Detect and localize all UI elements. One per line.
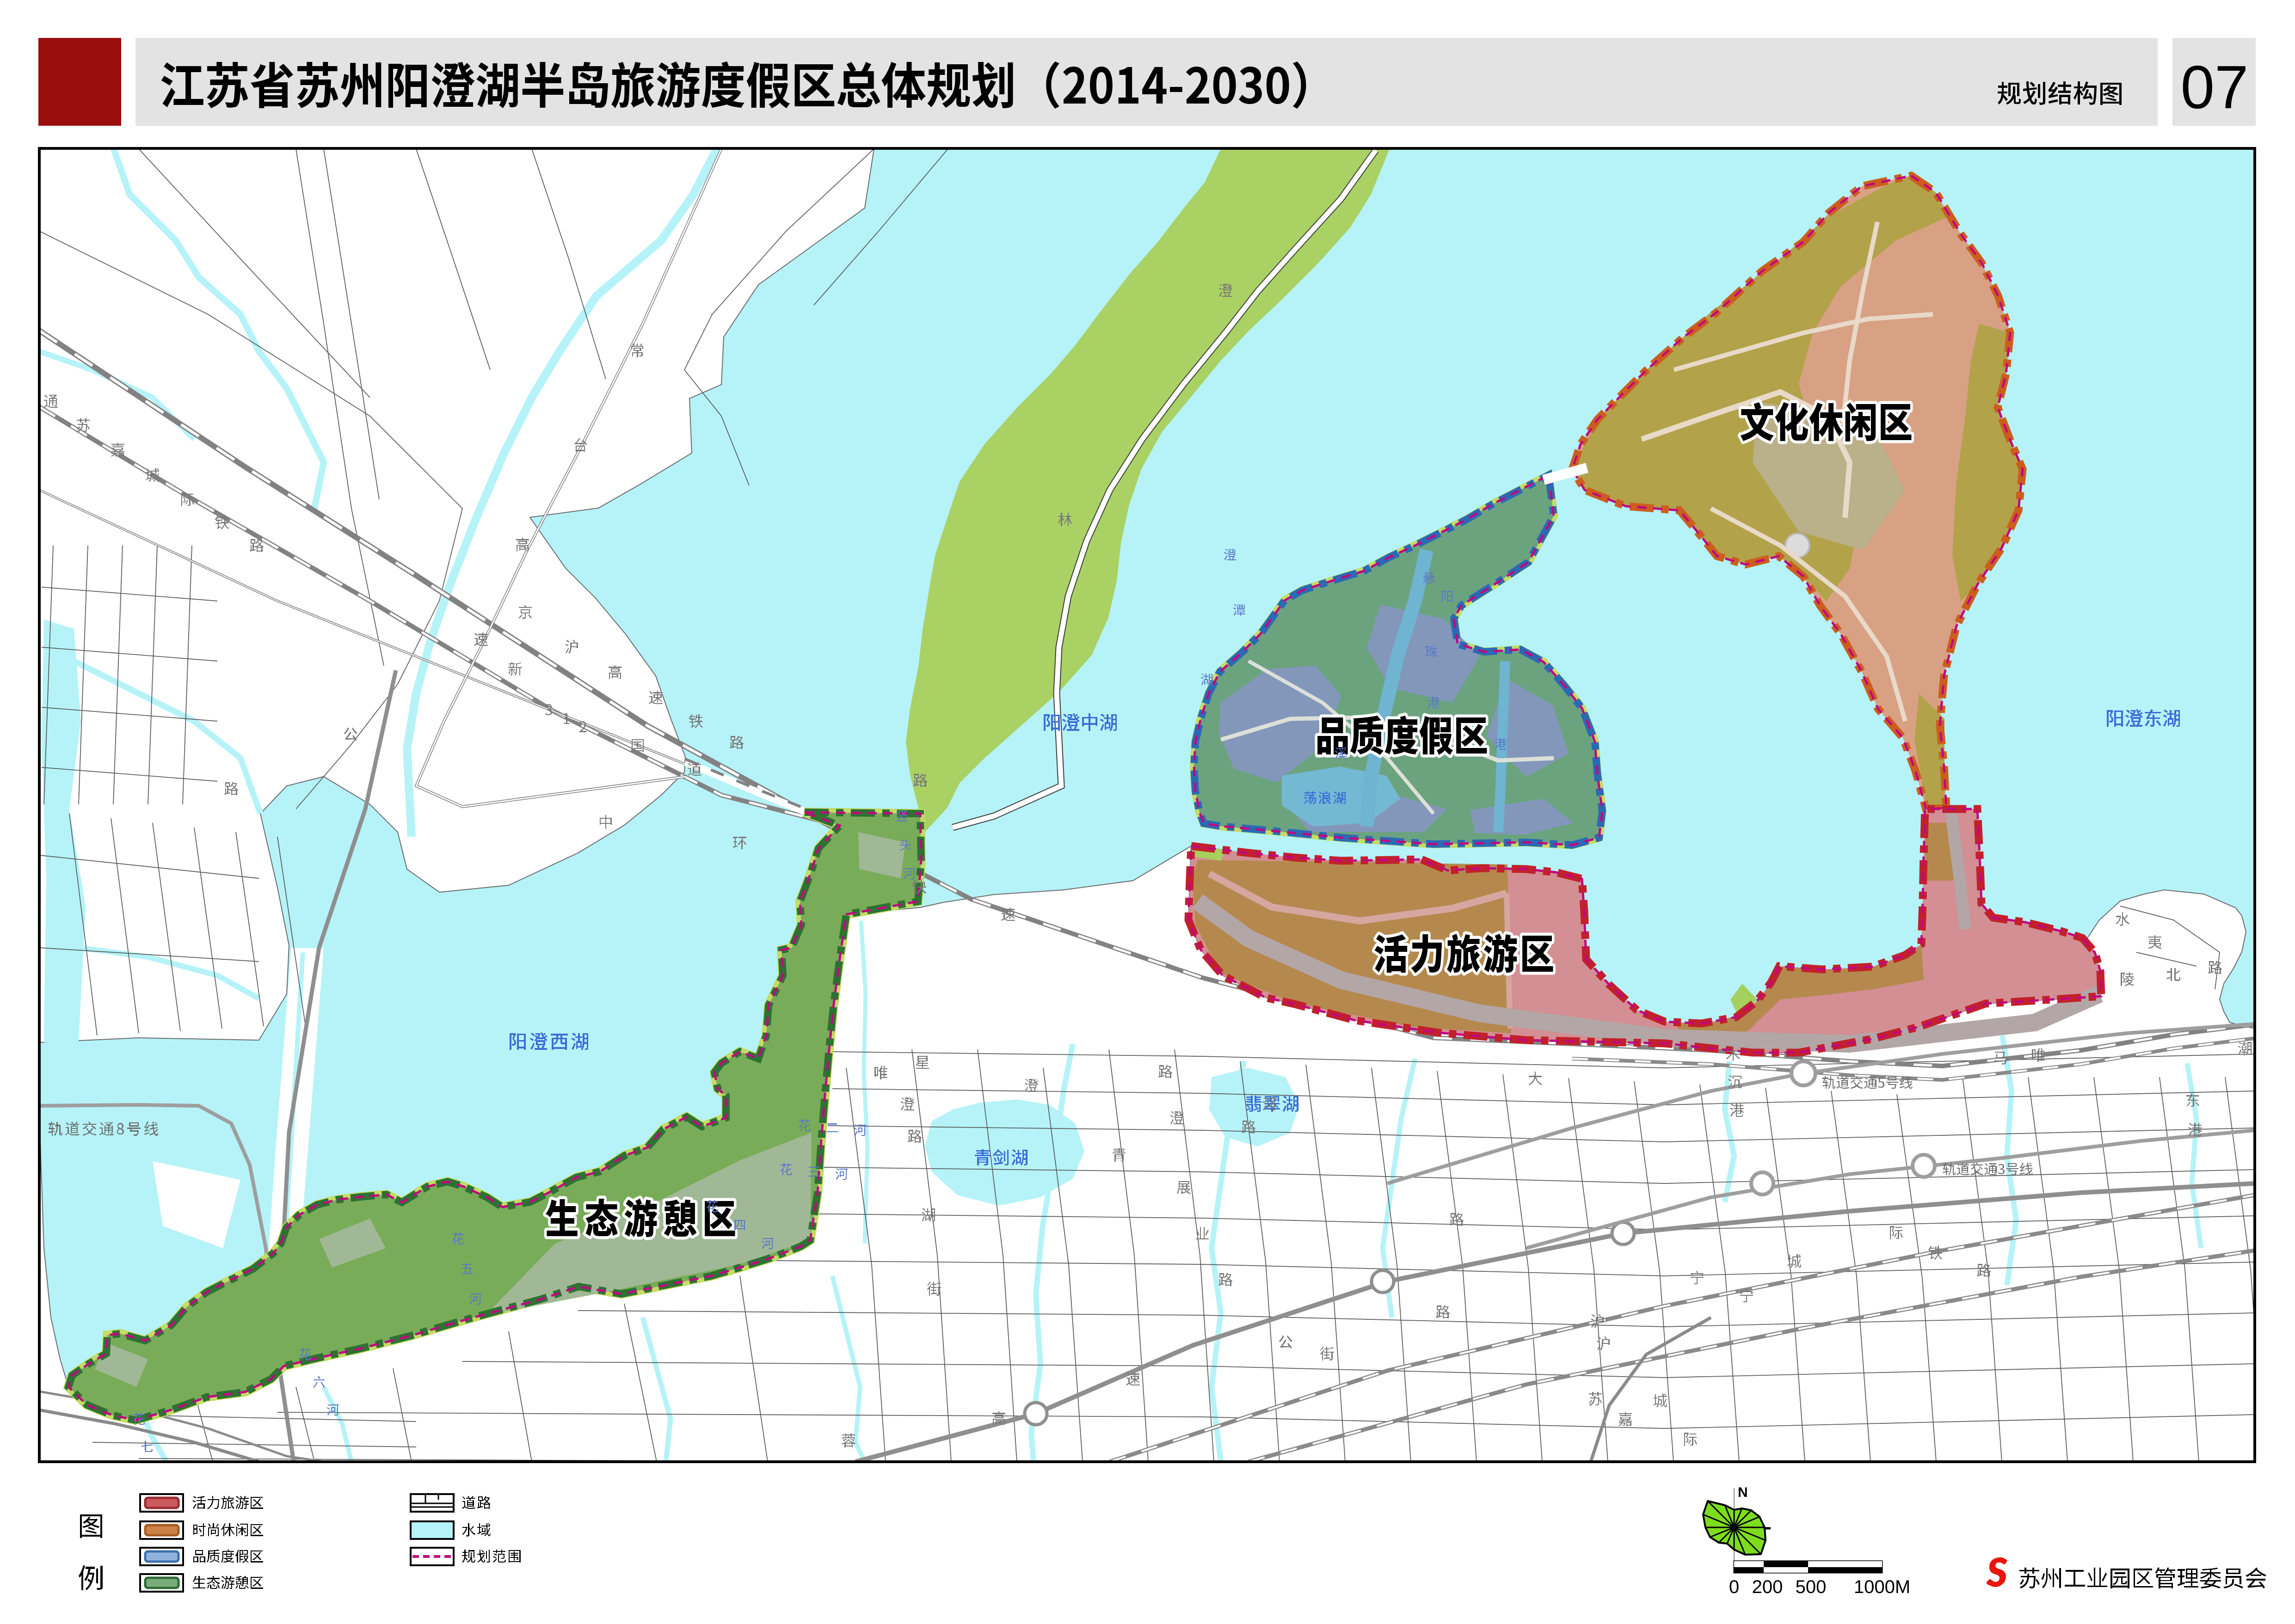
svg-text:0: 0 [1729,1577,1739,1597]
svg-text:500: 500 [1796,1577,1827,1597]
svg-text:07: 07 [2181,53,2249,121]
svg-text:N: N [1738,1485,1748,1500]
svg-text:1000M: 1000M [1854,1577,1910,1597]
svg-text:200: 200 [1752,1577,1783,1597]
